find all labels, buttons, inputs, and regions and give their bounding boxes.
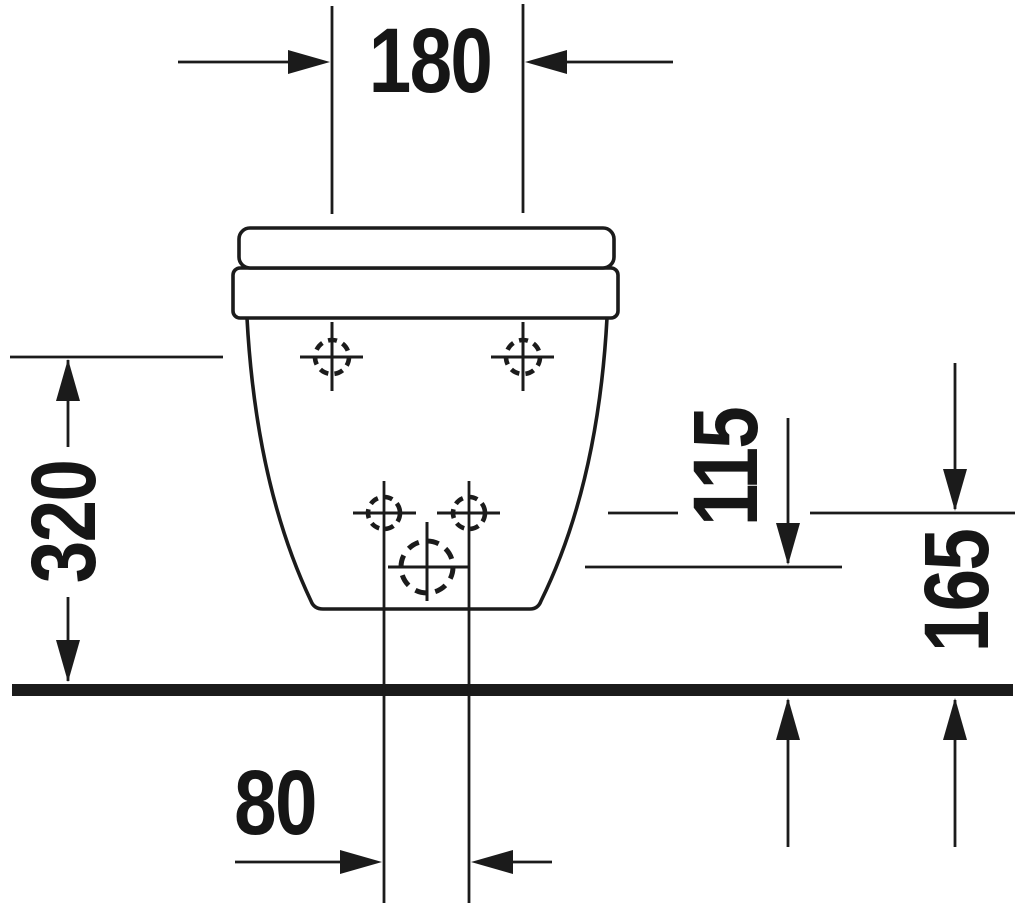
body-rim-lower-band [233,268,618,318]
body-rim-upper-band [239,228,614,268]
dim-label-floor-to-upper-holes: 320 [18,457,110,586]
technical-drawing-canvas: 180 320 115 165 80 [0,0,1024,910]
dim-label-floor-to-lower-holes: 165 [911,526,1003,655]
dim-label-top-width: 180 [365,15,494,107]
arrowhead-down [776,523,800,565]
arrowhead-down [56,640,80,682]
arrowhead-right [288,50,330,74]
dim-label-lower-holes-spacing: 80 [231,757,319,849]
arrowhead-up [56,359,80,401]
drawing-linework [0,0,1024,910]
arrowhead-left [471,850,513,874]
arrowhead-up [776,698,800,740]
arrowhead-left [525,50,567,74]
arrowhead-right [340,850,382,874]
arrowhead-up [943,698,967,740]
dim-label-floor-to-outlet: 115 [680,405,772,530]
dim-115-lines [776,418,800,847]
arrowhead-down [943,469,967,511]
